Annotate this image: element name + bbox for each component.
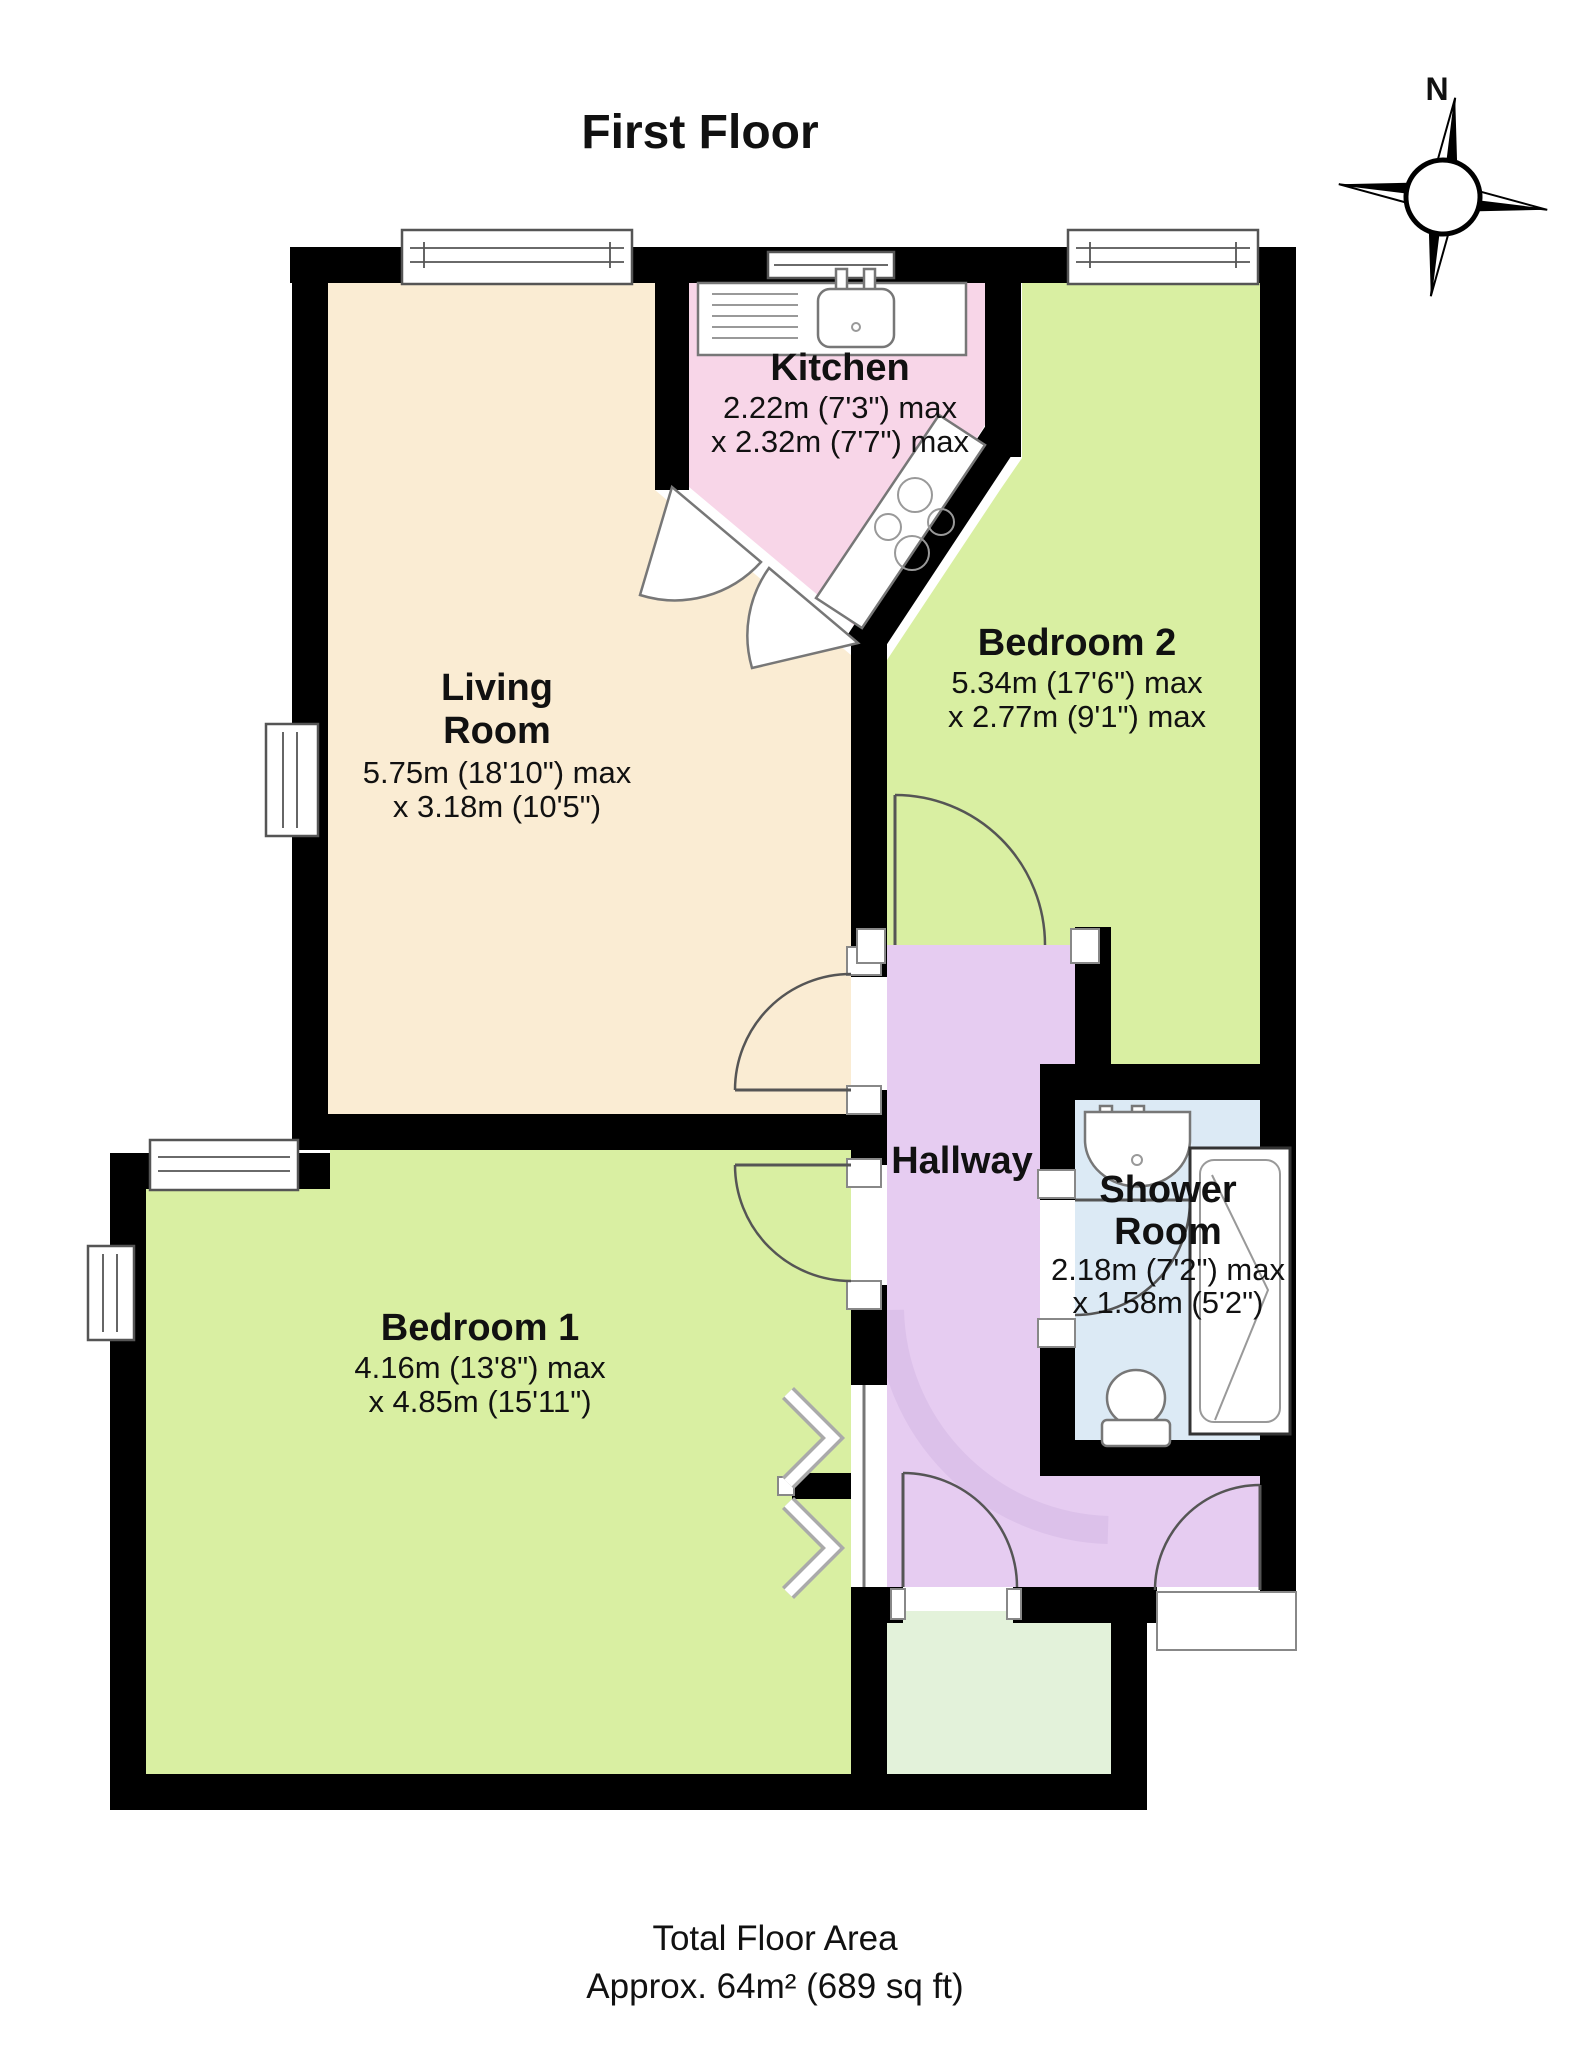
wall-living-bottom	[292, 1114, 887, 1150]
door-stop	[857, 929, 885, 963]
compass-north-label: N	[1425, 71, 1448, 107]
door-stop	[1038, 1319, 1075, 1347]
room-dim1: 5.34m (17'6") max	[951, 665, 1203, 700]
wall-kitchen-bedroom2	[985, 247, 1021, 457]
room-landing-floor	[887, 1611, 1111, 1774]
footer-line1: Total Floor Area	[652, 1919, 898, 1958]
room-dim1: 2.18m (7'2") max	[1051, 1252, 1285, 1287]
room-name: Bedroom 2	[978, 622, 1176, 664]
window-bedroom2-top	[1068, 230, 1258, 284]
label-bedroom-2: Bedroom 2 5.34m (17'6") max x 2.77m (9'1…	[948, 622, 1207, 734]
room-name-line2: Room	[443, 710, 551, 752]
kitchen-sink-icon	[698, 269, 966, 355]
room-dim2: x 2.77m (9'1") max	[948, 699, 1207, 734]
room-dim1: 2.22m (7'3") max	[723, 390, 957, 425]
door-stop	[1007, 1589, 1021, 1619]
wall-core-a	[851, 640, 887, 977]
wall-living-kitchen	[655, 247, 689, 490]
room-name-line1: Living	[441, 667, 553, 709]
page-title: First Floor	[581, 106, 818, 159]
wall-landing-right	[1111, 1611, 1147, 1781]
room-name: Hallway	[891, 1140, 1033, 1182]
window-bedroom1-top	[150, 1140, 298, 1190]
footer-line2: Approx. 64m² (689 sq ft)	[586, 1967, 963, 2006]
door-stop	[847, 1281, 881, 1309]
label-bedroom-1: Bedroom 1 4.16m (13'8") max x 4.85m (15'…	[354, 1307, 606, 1419]
footer-total-area: Total Floor Area Approx. 64m² (689 sq ft…	[586, 1919, 963, 2006]
door-stop	[847, 1159, 881, 1187]
wall-bottom	[110, 1774, 1147, 1810]
room-dim2: x 2.32m (7'7") max	[711, 424, 970, 459]
label-hallway: Hallway	[891, 1140, 1033, 1182]
room-name-line1: Shower	[1099, 1169, 1236, 1211]
wall-shower-top	[1040, 1064, 1296, 1100]
window-bedroom1-left	[88, 1246, 134, 1340]
window-living-top	[402, 230, 632, 284]
room-name: Kitchen	[770, 347, 909, 389]
room-dim2: x 1.58m (5'2")	[1073, 1285, 1264, 1320]
wall-living-left	[292, 247, 328, 1150]
window-living-left	[266, 724, 318, 836]
door-stop	[847, 1086, 881, 1114]
door-stop	[1071, 929, 1099, 963]
room-dim1: 5.75m (18'10") max	[363, 755, 632, 790]
room-dim2: x 4.85m (15'11")	[368, 1384, 591, 1419]
floor-plan: N First Floor Kitchen 2.22m (7'3") max x…	[0, 0, 1576, 2048]
room-bedroom-1-floor	[146, 1150, 851, 1774]
room-dim1: 4.16m (13'8") max	[354, 1350, 606, 1385]
door-stop	[1038, 1170, 1075, 1198]
compass-icon: N	[1327, 71, 1560, 309]
door-stop	[891, 1589, 905, 1619]
toilet-icon	[1102, 1370, 1170, 1446]
entry-threshold	[1157, 1592, 1296, 1650]
room-dim2: x 3.18m (10'5")	[393, 789, 601, 824]
room-name-line2: Room	[1114, 1211, 1222, 1253]
room-name: Bedroom 1	[381, 1307, 579, 1349]
